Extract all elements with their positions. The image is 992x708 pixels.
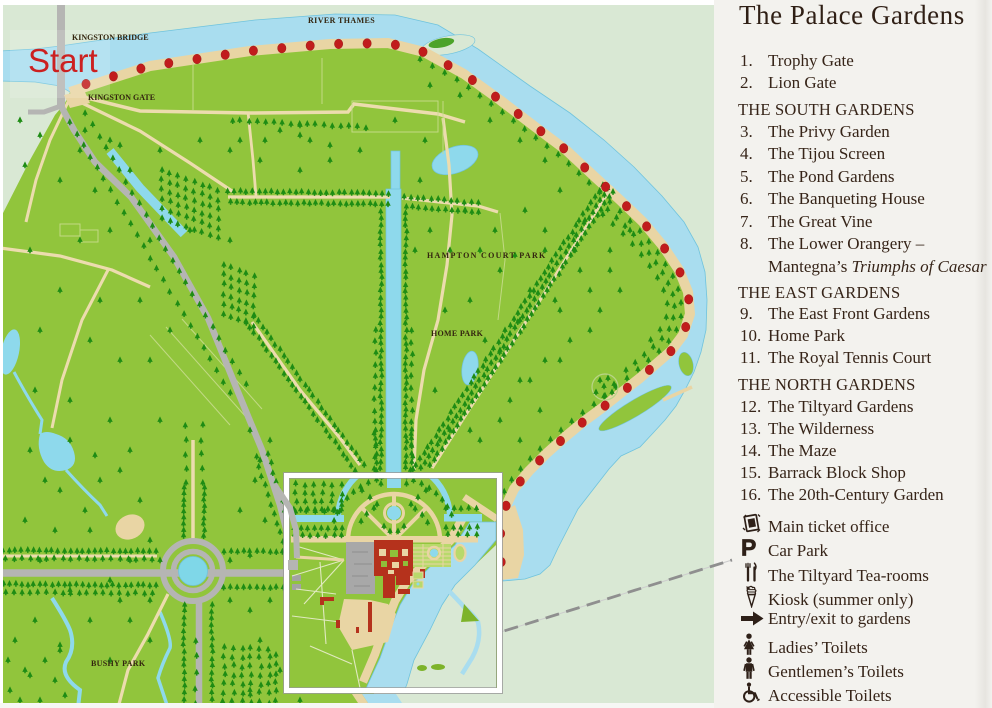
svg-text:RIVER THAMES: RIVER THAMES bbox=[308, 16, 375, 25]
svg-text:Start: Start bbox=[28, 42, 98, 79]
svg-text:BUSHY PARK: BUSHY PARK bbox=[91, 659, 146, 668]
svg-text:KINGSTON BRIDGE: KINGSTON BRIDGE bbox=[72, 33, 149, 42]
svg-text:HOME PARK: HOME PARK bbox=[431, 329, 484, 338]
svg-text:HAMPTON COURT PARK: HAMPTON COURT PARK bbox=[427, 251, 547, 260]
svg-text:KINGSTON GATE: KINGSTON GATE bbox=[88, 93, 155, 102]
